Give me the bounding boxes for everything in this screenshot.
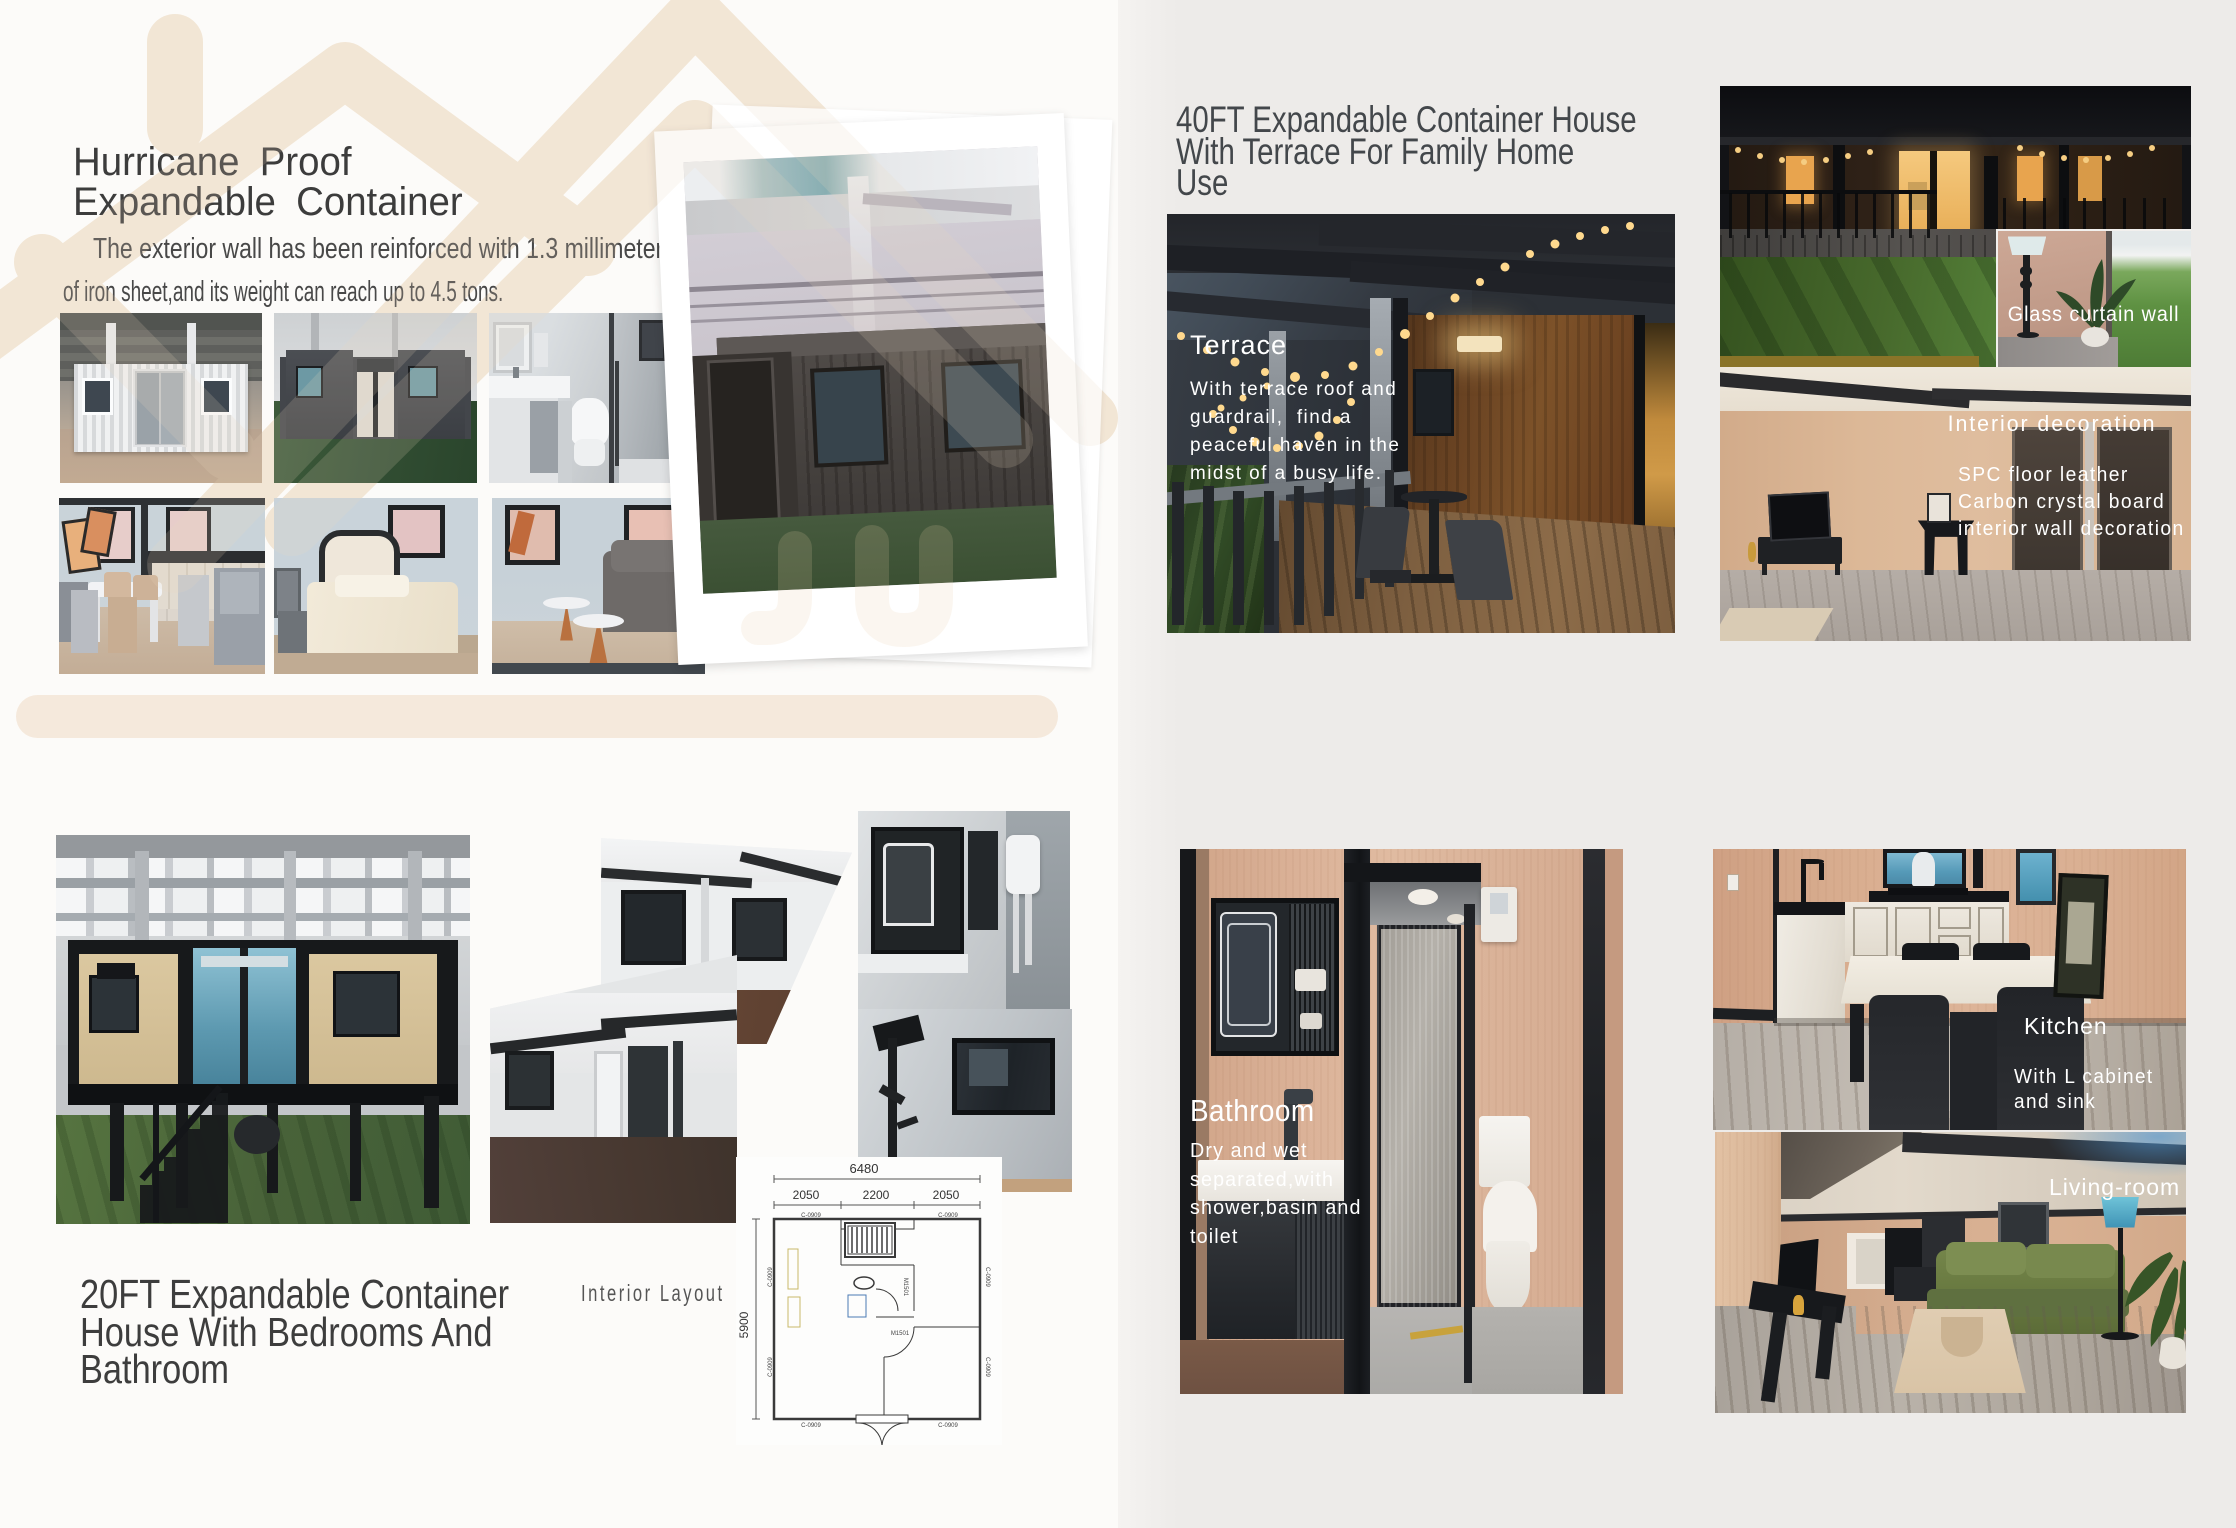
svg-text:C-0909: C-0909 (801, 1423, 821, 1429)
svg-text:C-0909: C-0909 (801, 1213, 821, 1219)
svg-text:2050: 2050 (933, 1188, 960, 1202)
svg-text:M1501: M1501 (891, 1331, 910, 1337)
svg-text:C-0909: C-0909 (768, 1357, 774, 1377)
svg-text:C-0909: C-0909 (984, 1267, 990, 1287)
svg-text:C-0909: C-0909 (984, 1357, 990, 1377)
svg-text:C-0909: C-0909 (938, 1423, 958, 1429)
svg-text:C-0909: C-0909 (938, 1213, 958, 1219)
svg-text:2200: 2200 (863, 1188, 890, 1202)
svg-text:M1501: M1501 (902, 1278, 908, 1297)
svg-text:5900: 5900 (737, 1311, 751, 1338)
svg-text:6480: 6480 (850, 1161, 879, 1176)
svg-text:2050: 2050 (793, 1188, 820, 1202)
svg-text:C-0909: C-0909 (768, 1267, 774, 1287)
